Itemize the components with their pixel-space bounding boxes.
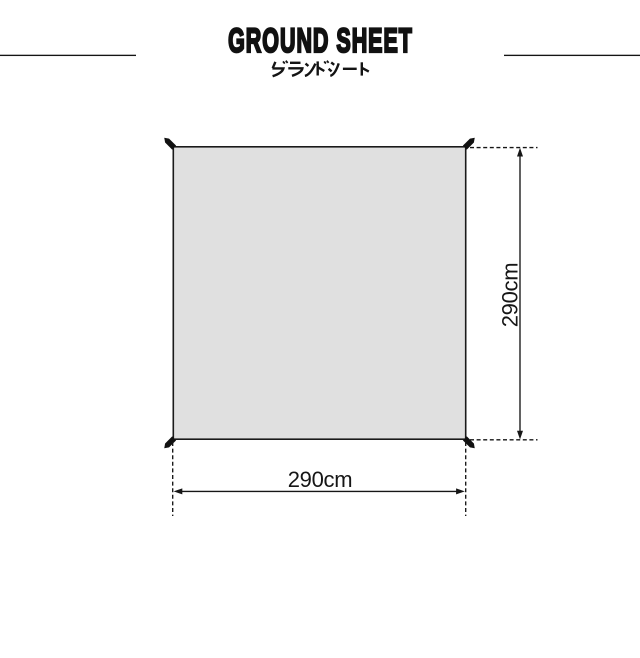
svg-text:GROUND SHEET: GROUND SHEET <box>228 22 413 60</box>
svg-text:290cm: 290cm <box>498 263 523 328</box>
svg-text:290cm: 290cm <box>288 467 353 492</box>
